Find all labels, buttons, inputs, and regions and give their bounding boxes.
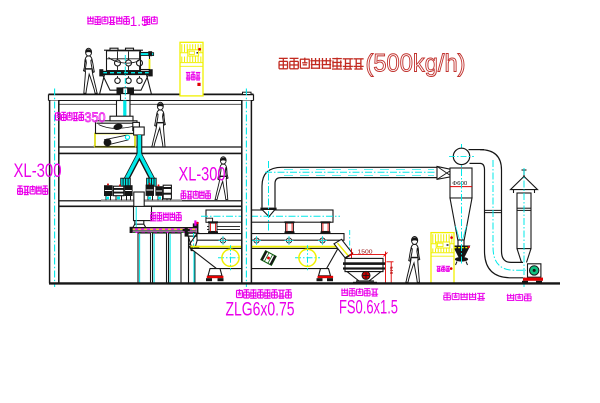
svg-text:1500: 1500	[358, 249, 373, 255]
svg-text:Φ600: Φ600	[452, 181, 467, 187]
svg-text:1.5: 1.5	[130, 14, 149, 29]
svg-text:XL-300: XL-300	[179, 164, 226, 185]
svg-text:548: 548	[389, 267, 394, 275]
svg-text:ZLG6x0.75: ZLG6x0.75	[226, 300, 295, 321]
svg-text:(500kg/h): (500kg/h)	[366, 50, 466, 77]
svg-text:350: 350	[85, 109, 106, 125]
svg-text:XL-300: XL-300	[14, 161, 62, 182]
svg-text:FS0.6x1.5: FS0.6x1.5	[339, 297, 398, 318]
